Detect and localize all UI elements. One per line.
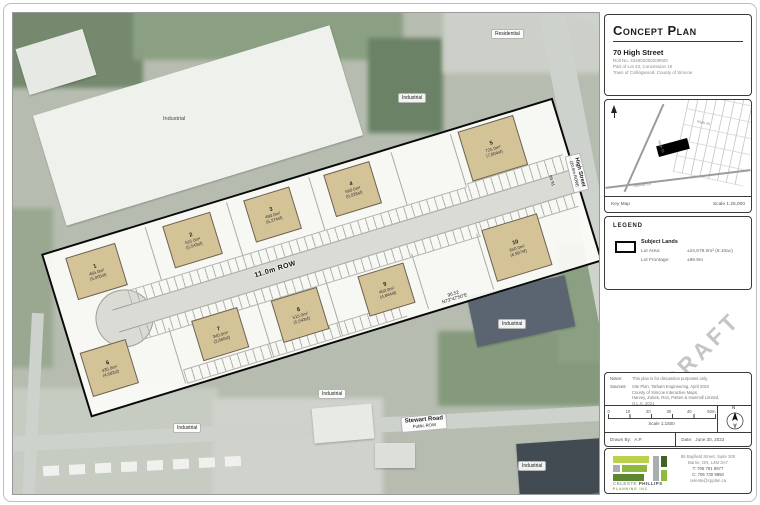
lot-frontage-value: ±89.9m xyxy=(687,258,703,263)
aerial-patch xyxy=(443,12,600,73)
compass-north-label: N xyxy=(732,405,735,410)
drawn-by-value: A.P. xyxy=(634,437,642,442)
proposed-building-6: 6 435.0m² (4,682sf) xyxy=(80,339,139,397)
scale-bar: 0 10 20 30 40 50m Scale 1:1500 xyxy=(605,405,718,432)
consultant-name: CELESTE PHILLIPS xyxy=(613,481,663,486)
sources-label: Sources: xyxy=(610,384,632,406)
key-map-box: High St Ruth St Stewart Dr Key Map Scale… xyxy=(604,99,752,213)
key-map-street-label: Stewart Dr xyxy=(633,181,652,188)
proposed-building-4: 4 560.0m² (6,028sf) xyxy=(323,161,382,217)
industrial-label: Industrial xyxy=(163,116,185,122)
scale-tick: 0 xyxy=(608,409,610,414)
drawn-by-label: Drawn By: xyxy=(610,437,631,442)
lot-frontage-label: Lot Frontage: xyxy=(641,258,670,263)
consultant-name-last: PHILLIPS xyxy=(639,481,663,486)
consultant-address: 85 Bayfield Street, Suite 300 Barrie, ON… xyxy=(673,454,743,484)
scale-tick: 50m xyxy=(707,409,715,414)
industrial-label: Industrial xyxy=(518,461,546,471)
site-address: 70 High Street xyxy=(613,48,743,57)
title-block: Concept Plan 70 High Street Roll No. 434… xyxy=(604,14,752,96)
date-value: June 30, 2022 xyxy=(695,437,724,442)
north-arrow-icon xyxy=(614,113,615,118)
notes-box: Notes: This plan is for discussion purpo… xyxy=(604,372,752,447)
proposed-building-2: 2 515.0m² (5,543sf) xyxy=(162,212,223,269)
aerial-patch xyxy=(368,38,443,133)
aerial-map: 11.0m ROW 1 465.0m² (5,005sf) 2 515.0m² … xyxy=(12,12,600,495)
lot-area-label: Lot Area: xyxy=(641,249,660,254)
scale-text: Scale 1:1500 xyxy=(605,421,718,426)
lot-line xyxy=(308,177,325,230)
drawn-date-row: Drawn By: A.P. Date: June 30, 2022 xyxy=(605,432,751,446)
consultant-tagline: PLANNING INC xyxy=(613,487,648,491)
industrial-label: Industrial xyxy=(173,423,201,433)
consultant-block: CELESTE PHILLIPS PLANNING INC 85 Bayfiel… xyxy=(604,448,752,494)
industrial-building-roof xyxy=(375,443,415,468)
notes-label: Notes: xyxy=(610,376,632,381)
legend-box: LEGEND Subject Lands Lot Area: ±24,678.0… xyxy=(604,216,752,290)
compass-icon xyxy=(724,407,746,431)
stewart-road-label: Stewart Road Public ROW xyxy=(400,413,448,433)
lot-line xyxy=(145,227,162,280)
legend-header: LEGEND xyxy=(613,223,743,229)
sources-text: Site Plan, Tatham Engineering, April 202… xyxy=(632,384,746,406)
industrial-label: Industrial xyxy=(318,389,346,399)
sheet-title: Concept Plan xyxy=(613,23,743,42)
municipality: Town of Collingwood, County of Simcoe xyxy=(613,70,743,76)
scale-tick: 30 xyxy=(666,409,671,414)
industrial-building-roof xyxy=(312,403,375,443)
consultant-name-first: CELESTE xyxy=(613,481,637,486)
key-map-footer: Key Map Scale 1:25,000 xyxy=(605,196,751,212)
subject-lands-label: Subject Lands xyxy=(641,239,678,245)
scale-tick: 40 xyxy=(687,409,692,414)
lot-line xyxy=(168,328,186,384)
notes-text: This plan is for discussion purposes onl… xyxy=(632,376,746,381)
scale-tick: 20 xyxy=(646,409,651,414)
date-label: Date: xyxy=(681,437,692,442)
lot-line xyxy=(226,202,243,255)
residential-label: Residential xyxy=(491,29,524,39)
key-map-label: Key Map xyxy=(611,202,630,207)
scale-bar-line xyxy=(608,414,716,419)
proposed-building-3: 3 490.0m² (5,274sf) xyxy=(243,187,302,243)
email-line: celeste@cpplan.ca xyxy=(673,478,743,484)
lot-line xyxy=(391,152,408,205)
lot-area-value: ±24,678.0m² (6.10ac) xyxy=(687,249,733,254)
scale-tick: 10 xyxy=(626,409,631,414)
subject-lands-symbol xyxy=(615,241,636,253)
key-map-scale: Scale 1:25,000 xyxy=(713,202,745,207)
industrial-label: Industrial xyxy=(498,319,526,329)
north-arrow-icon xyxy=(611,105,617,113)
industrial-label: Industrial xyxy=(398,93,426,103)
north-compass: N xyxy=(717,405,751,432)
key-map: High St Ruth St Stewart Dr xyxy=(605,100,751,195)
